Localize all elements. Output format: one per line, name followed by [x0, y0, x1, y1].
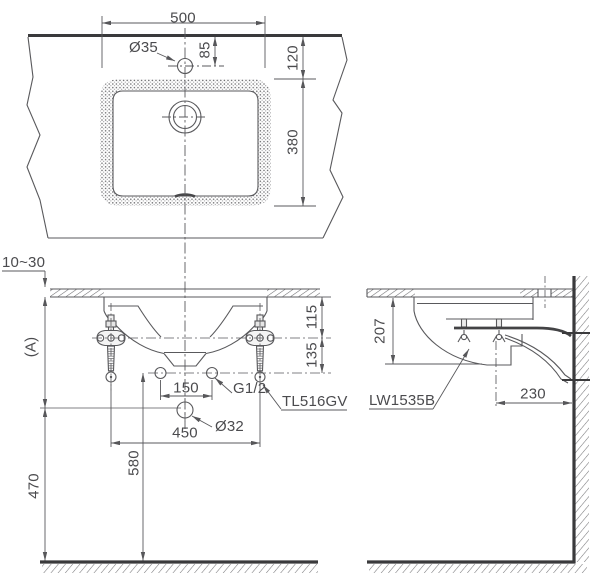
- front-view-dimensions: [2, 271, 347, 561]
- dim-hanger-drop: 115: [305, 305, 320, 330]
- basin-side-outline: [414, 297, 533, 365]
- label-drain-diameter: Ø32: [215, 419, 244, 434]
- installation-drawing: 500 Ø35 85 120 380 10~30 (A) 115 135 150…: [0, 0, 600, 583]
- top-view: [27, 16, 347, 430]
- label-hanger-model: TL516GV: [282, 394, 348, 409]
- counter-hatch-right: [267, 289, 320, 297]
- counter-hatch-left: [50, 289, 104, 297]
- mounting-hardware: [454, 319, 571, 342]
- hanger-bracket-right: [246, 303, 274, 392]
- counter-hatch-b: [520, 289, 538, 297]
- hanger-bracket-left: [97, 303, 125, 392]
- label-faucet-diameter: Ø35: [129, 40, 158, 55]
- stop-valve-right: [493, 330, 505, 342]
- dim-supply-drop: 135: [305, 342, 320, 368]
- dim-faucet-offset: 85: [198, 41, 213, 58]
- counter-hatch-a: [367, 289, 415, 297]
- dim-counter-thickness: 10~30: [2, 255, 45, 270]
- label-supply-thread: G1/2: [233, 381, 266, 396]
- floor-hatch-right: [369, 564, 587, 573]
- wall-hatch: [576, 276, 590, 562]
- dim-overall-width: 500: [170, 11, 196, 26]
- dim-basin-depth: 380: [286, 129, 301, 155]
- dim-supply-height: 580: [127, 450, 142, 476]
- stop-valve-left: [458, 330, 470, 342]
- label-basin-model: LW1535B: [369, 393, 435, 408]
- dim-counter-height-a: (A): [24, 337, 39, 358]
- dim-drain-height: 470: [27, 473, 42, 499]
- dim-supply-spacing: 150: [173, 381, 199, 396]
- basin-front-outline: [104, 297, 267, 366]
- break-line-right: [323, 37, 347, 238]
- dim-drain-from-wall: 230: [520, 387, 546, 402]
- dim-hanger-spacing: 450: [172, 426, 198, 441]
- counter-hatch-c: [551, 289, 573, 297]
- drain-pipe-inner: [505, 338, 568, 383]
- drawing-linework: [0, 0, 600, 583]
- floor-hatch-left: [42, 564, 318, 573]
- basin-inner-rim: [113, 91, 258, 196]
- dim-basin-front-offset: 120: [286, 45, 301, 71]
- break-line-left: [27, 37, 48, 238]
- dim-basin-height: 207: [373, 318, 388, 344]
- front-view: [2, 271, 347, 561]
